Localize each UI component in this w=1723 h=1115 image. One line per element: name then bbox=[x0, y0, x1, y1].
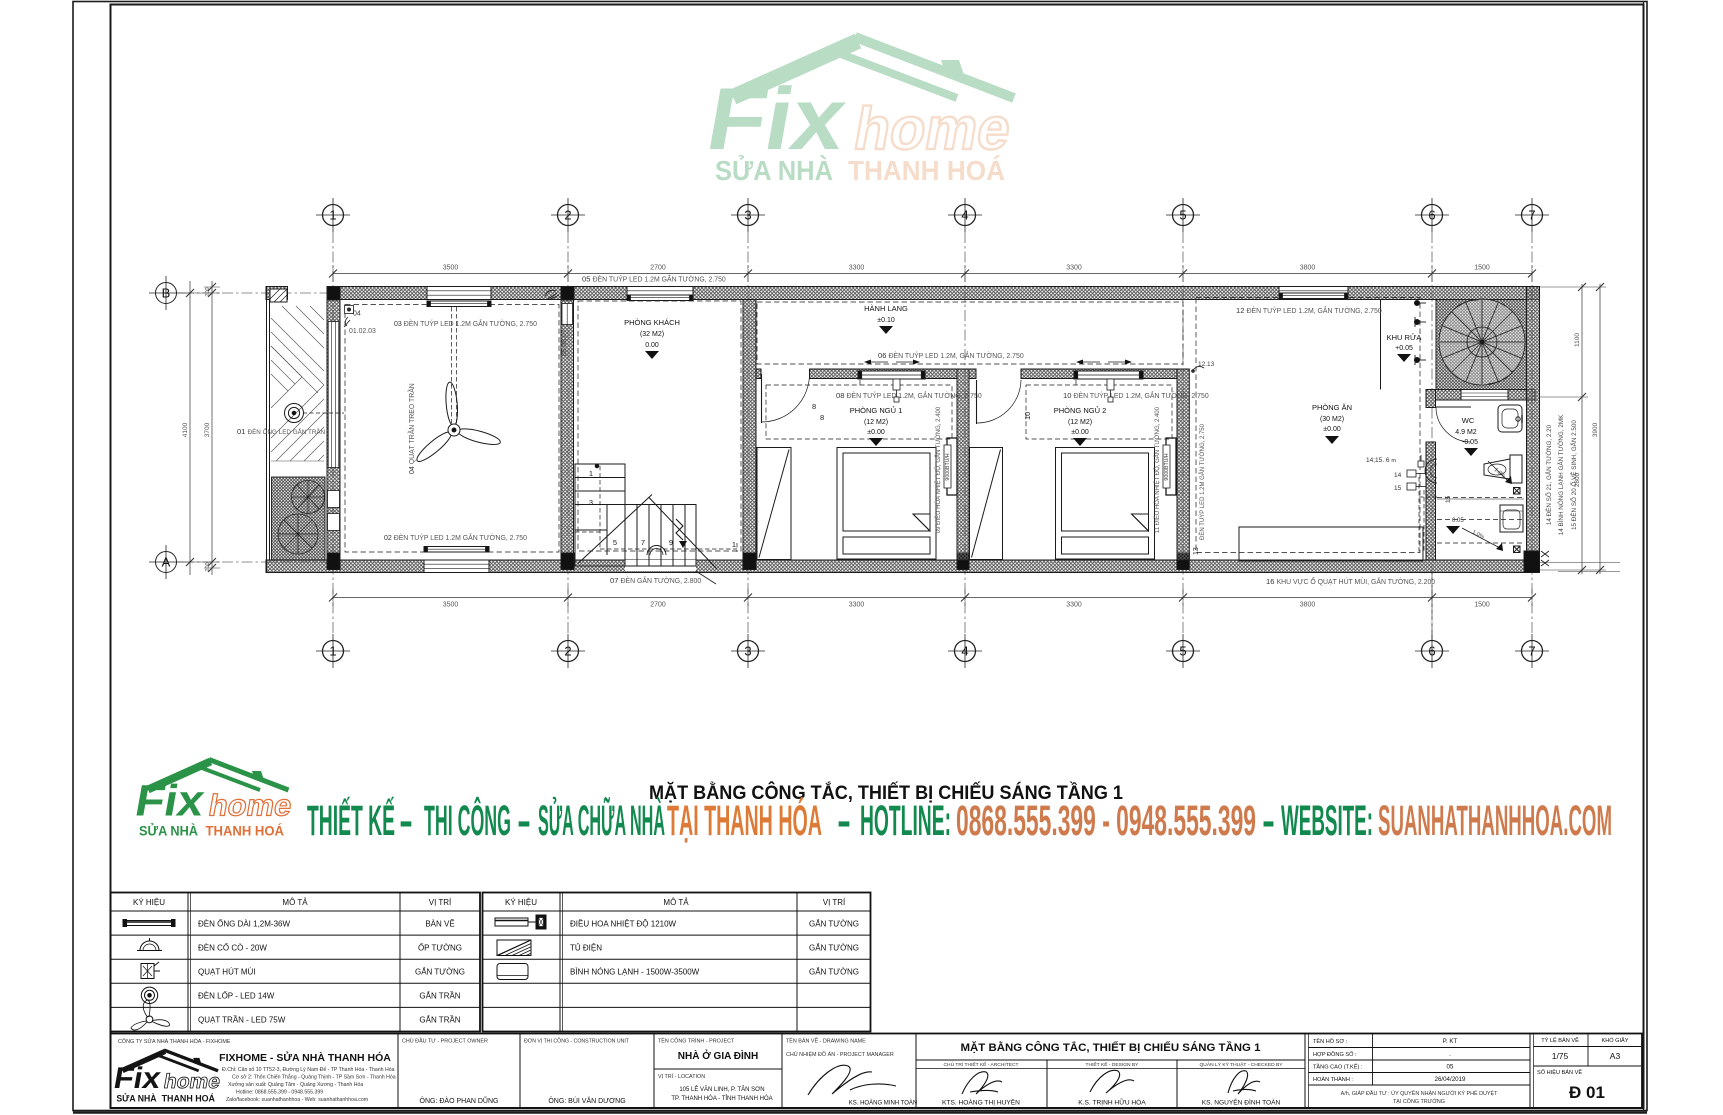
svg-text:08 ĐÈN TUÝP LED 1.2M, GẮN TƯỜN: 08 ĐÈN TUÝP LED 1.2M, GẮN TƯỜNG, 2.750 bbox=[836, 391, 982, 400]
svg-text:03 ĐÈN TUÝP LED 1.2M GẮN TƯỜNG: 03 ĐÈN TUÝP LED 1.2M GẮN TƯỜNG, 2.750 bbox=[394, 319, 537, 328]
svg-text:02 ĐÈN TUÝP LED 1.2M GẮN TƯỜNG: 02 ĐÈN TUÝP LED 1.2M GẮN TƯỜNG, 2.750 bbox=[384, 533, 527, 542]
svg-text:PHÒNG ĂN: PHÒNG ĂN bbox=[1312, 403, 1352, 412]
svg-text:Cơ sở 2: Thôn Chiến Thắng - Qu: Cơ sở 2: Thôn Chiến Thắng - Quảng Thịnh … bbox=[232, 1074, 396, 1081]
svg-text:2700: 2700 bbox=[650, 265, 666, 272]
svg-text:1100: 1100 bbox=[1574, 333, 1581, 347]
svg-text:ĐƠN VỊ THI CÔNG - CONSTRUCTION: ĐƠN VỊ THI CÔNG - CONSTRUCTION UNIT bbox=[524, 1038, 630, 1045]
svg-text:SỐ HIỆU BẢN VẼ: SỐ HIỆU BẢN VẼ bbox=[1537, 1068, 1582, 1076]
svg-text:NHÀ Ở GIA ĐÌNH: NHÀ Ở GIA ĐÌNH bbox=[678, 1049, 758, 1062]
svg-text:04: 04 bbox=[353, 311, 361, 318]
svg-text:THI CÔNG: THI CÔNG bbox=[424, 796, 511, 845]
svg-text:9: 9 bbox=[669, 538, 673, 547]
svg-text:SUANHATHANHHOA.COM: SUANHATHANHHOA.COM bbox=[1378, 798, 1612, 845]
svg-text:14 ĐÈN SỐ 21, GẮN TƯỜNG, 2.20: 14 ĐÈN SỐ 21, GẮN TƯỜNG, 2.20 bbox=[1543, 424, 1553, 525]
svg-text:14: 14 bbox=[1394, 472, 1402, 479]
svg-text:3800: 3800 bbox=[1300, 602, 1316, 609]
svg-text:SỬA NHÀ: SỬA NHÀ bbox=[139, 822, 198, 839]
svg-text:6: 6 bbox=[1428, 208, 1435, 223]
svg-text:ĐÈN ỐNG DÀI 1,2M-36W: ĐÈN ỐNG DÀI 1,2M-36W bbox=[198, 919, 290, 929]
svg-text:9000BTU/H: 9000BTU/H bbox=[945, 453, 951, 480]
svg-text:1: 1 bbox=[329, 644, 336, 659]
svg-text:Zalo/facebook: suanhathanhhoa: Zalo/facebook: suanhathanhhoa - Web: sua… bbox=[226, 1097, 368, 1103]
svg-text:home: home bbox=[162, 1070, 222, 1093]
svg-text:2700: 2700 bbox=[650, 602, 666, 609]
svg-text:3300: 3300 bbox=[1066, 265, 1082, 272]
svg-text:TẠI CÔNG TRƯỜNG: TẠI CÔNG TRƯỜNG bbox=[1393, 1098, 1445, 1105]
svg-text:THIẾT KẾ: THIẾT KẾ bbox=[307, 797, 395, 845]
svg-text:(12 M2): (12 M2) bbox=[1068, 419, 1092, 426]
svg-text:3500: 3500 bbox=[443, 602, 459, 609]
svg-text:05.06.07: 05.06.07 bbox=[561, 329, 568, 356]
svg-text:home: home bbox=[849, 94, 1016, 161]
svg-text:3: 3 bbox=[744, 644, 751, 659]
svg-text:15: 15 bbox=[1445, 495, 1452, 503]
svg-text:-: - bbox=[837, 798, 851, 845]
svg-text:MÔ TẢ: MÔ TẢ bbox=[663, 898, 689, 907]
svg-text:HỢP ĐỒNG SỐ :: HỢP ĐỒNG SỐ : bbox=[1313, 1051, 1357, 1058]
svg-text:home: home bbox=[206, 790, 294, 823]
svg-text:ĐÈN CỔ CÒ - 20W: ĐÈN CỔ CÒ - 20W bbox=[198, 944, 267, 953]
svg-text:8: 8 bbox=[820, 413, 824, 422]
svg-text:Fix: Fix bbox=[111, 1062, 163, 1095]
svg-text:4: 4 bbox=[961, 644, 968, 659]
svg-text:Hotline: 0868.555.399 - 0948.5: Hotline: 0868.555.399 - 0948.555.399 bbox=[236, 1090, 323, 1096]
svg-text:15: 15 bbox=[1394, 485, 1402, 492]
svg-text:ĐÈN TUÝP LED 1.2M GẮN TƯỜNG, 2: ĐÈN TUÝP LED 1.2M GẮN TƯỜNG, 2.750 bbox=[1198, 423, 1206, 540]
svg-text:05 ĐÈN TUÝP LED 1.2M GẮN TƯỜNG: 05 ĐÈN TUÝP LED 1.2M GẮN TƯỜNG, 2.750 bbox=[582, 275, 726, 284]
svg-text:TÊN CÔNG TRÌNH - PROJECT: TÊN CÔNG TRÌNH - PROJECT bbox=[658, 1037, 735, 1045]
svg-text:200: 200 bbox=[205, 287, 211, 296]
svg-text:4: 4 bbox=[961, 208, 968, 223]
svg-text:THANH HOÁ: THANH HOÁ bbox=[162, 1094, 215, 1105]
svg-text:1.0%: 1.0% bbox=[1471, 529, 1485, 540]
svg-text:TP. THANH HÓA - TỈNH THANH HÓA: TP. THANH HÓA - TỈNH THANH HÓA bbox=[671, 1095, 772, 1102]
svg-text:3: 3 bbox=[589, 498, 593, 507]
svg-text:TẠI THANH HÓA: TẠI THANH HÓA bbox=[667, 796, 822, 845]
svg-text:±0.10: ±0.10 bbox=[877, 317, 895, 324]
svg-text:+0.05: +0.05 bbox=[1395, 345, 1413, 352]
svg-text:TỦ ĐIỆN: TỦ ĐIỆN bbox=[570, 944, 602, 953]
svg-text:ÔNG: BÙI VĂN DƯƠNG: ÔNG: BÙI VĂN DƯƠNG bbox=[548, 1096, 625, 1105]
svg-text:1: 1 bbox=[732, 540, 736, 549]
svg-text:1: 1 bbox=[329, 208, 336, 223]
svg-text:10: 10 bbox=[1023, 412, 1032, 420]
svg-text:12.13: 12.13 bbox=[1198, 361, 1215, 368]
svg-text:GẮN TRẦN: GẮN TRẦN bbox=[419, 1015, 460, 1025]
svg-text:(30 M2): (30 M2) bbox=[1320, 416, 1344, 423]
svg-text:Đ.Chỉ: Căn số 10 TT52-3, Đường: Đ.Chỉ: Căn số 10 TT52-3, Đường Lý Nam Đế… bbox=[222, 1066, 395, 1073]
svg-text:3300: 3300 bbox=[849, 602, 865, 609]
svg-text:2: 2 bbox=[564, 644, 571, 659]
svg-text:THANH HOÁ: THANH HOÁ bbox=[206, 823, 285, 839]
svg-text:1500: 1500 bbox=[1474, 265, 1490, 272]
svg-text:0868.555.399 - 0948.555.399: 0868.555.399 - 0948.555.399 bbox=[956, 798, 1256, 845]
svg-text:ÔNG: ĐÀO PHAN DŨNG: ÔNG: ĐÀO PHAN DŨNG bbox=[420, 1096, 499, 1105]
svg-text:GẮN TƯỜNG: GẮN TƯỜNG bbox=[809, 944, 859, 953]
svg-text:VỊ TRÍ: VỊ TRÍ bbox=[429, 898, 452, 907]
svg-text:8: 8 bbox=[812, 402, 816, 411]
svg-text:CHỦ ĐẦU TƯ - PROJECT OWNER: CHỦ ĐẦU TƯ - PROJECT OWNER bbox=[402, 1038, 488, 1045]
svg-text:VỊ TRÍ - LOCATION: VỊ TRÍ - LOCATION bbox=[658, 1073, 705, 1080]
svg-text:TÊN BẢN VẼ - DRAWING NAME: TÊN BẢN VẼ - DRAWING NAME bbox=[786, 1037, 866, 1045]
svg-text:B: B bbox=[162, 286, 171, 301]
svg-text:P. KT: P. KT bbox=[1443, 1038, 1458, 1045]
svg-text:GẮN TƯỜNG: GẮN TƯỜNG bbox=[809, 920, 859, 929]
svg-text:3300: 3300 bbox=[849, 265, 865, 272]
svg-text:11 ĐIỀU HÒA NHIỆT ĐỘ, GẮN TƯỜN: 11 ĐIỀU HÒA NHIỆT ĐỘ, GẮN TƯỜNG, 2.400 bbox=[1153, 406, 1161, 533]
svg-text:GẮN TRẦN: GẮN TRẦN bbox=[419, 991, 460, 1001]
svg-text:2: 2 bbox=[564, 208, 571, 223]
svg-text:6: 6 bbox=[1428, 644, 1435, 659]
svg-text:BÌNH NÓNG LẠNH - 1500W-3500W: BÌNH NÓNG LẠNH - 1500W-3500W bbox=[570, 968, 700, 977]
svg-text:9000BTU/H: 9000BTU/H bbox=[1164, 453, 1170, 480]
svg-text:13: 13 bbox=[1193, 547, 1200, 555]
svg-text:01.02.03: 01.02.03 bbox=[349, 328, 376, 335]
svg-text:SỬA NHÀ: SỬA NHÀ bbox=[715, 154, 833, 186]
svg-text:GẮN TƯỜNG: GẮN TƯỜNG bbox=[809, 968, 859, 977]
svg-text:1/75: 1/75 bbox=[1552, 1051, 1569, 1061]
svg-text:.: . bbox=[1449, 1051, 1451, 1058]
svg-text:TÊN HỒ SƠ :: TÊN HỒ SƠ : bbox=[1313, 1037, 1348, 1045]
svg-text:5: 5 bbox=[1179, 644, 1186, 659]
svg-text:CÔNG TY SỬA NHÀ THANH HÓA - FI: CÔNG TY SỬA NHÀ THANH HÓA - FIXHOME bbox=[118, 1038, 231, 1045]
svg-text:HOÀN THÀNH :: HOÀN THÀNH : bbox=[1313, 1076, 1353, 1083]
svg-text:5: 5 bbox=[1179, 208, 1186, 223]
svg-text:K.S. TRỊNH HỮU HÓA: K.S. TRỊNH HỮU HÓA bbox=[1078, 1098, 1146, 1107]
svg-text:16 KHU VỰC Ổ QUẠT HÚT MÙI, GẮN: 16 KHU VỰC Ổ QUẠT HÚT MÙI, GẮN TƯỜNG, 2.… bbox=[1266, 577, 1435, 586]
svg-text:MẶT BẰNG CÔNG TẮC, THIẾT BỊ CH: MẶT BẰNG CÔNG TẮC, THIẾT BỊ CHIẾU SÁNG T… bbox=[961, 1041, 1261, 1054]
svg-text:THANH HOÁ: THANH HOÁ bbox=[848, 155, 1005, 186]
svg-text:05: 05 bbox=[1447, 1064, 1454, 1071]
svg-text:A: A bbox=[162, 555, 171, 570]
svg-text:±0.00: ±0.00 bbox=[867, 429, 885, 436]
svg-text:FIXHOME - SỬA NHÀ THANH HÓA: FIXHOME - SỬA NHÀ THANH HÓA bbox=[219, 1051, 391, 1064]
svg-text:KTS. HOÀNG THỊ HUYỀN: KTS. HOÀNG THỊ HUYỀN bbox=[942, 1097, 1020, 1107]
svg-text:7: 7 bbox=[1528, 644, 1535, 659]
svg-text:CHỦ TRÌ THIẾT KẾ - ARCHITECT: CHỦ TRÌ THIẾT KẾ - ARCHITECT bbox=[944, 1061, 1019, 1068]
svg-text:QUẠT HÚT MÙI: QUẠT HÚT MÙI bbox=[198, 968, 255, 977]
svg-text:ĐIỀU HOA NHIỆT ĐỘ 1210W: ĐIỀU HOA NHIỆT ĐỘ 1210W bbox=[570, 919, 677, 929]
svg-text:7: 7 bbox=[1528, 208, 1535, 223]
svg-text:KÝ HIỆU: KÝ HIỆU bbox=[505, 898, 537, 907]
svg-text:TỶ LỆ BẢN VẼ: TỶ LỆ BẢN VẼ bbox=[1541, 1036, 1579, 1044]
svg-text:QUẠT TRẦN - LED 75W: QUẠT TRẦN - LED 75W bbox=[198, 1015, 286, 1025]
svg-text:±0.00: ±0.00 bbox=[1071, 429, 1089, 436]
svg-text:-: - bbox=[517, 798, 531, 845]
svg-text:A3: A3 bbox=[1610, 1051, 1621, 1061]
svg-text:(32 M2): (32 M2) bbox=[640, 331, 664, 338]
svg-text:THIẾT KẾ - DESIGN BY: THIẾT KẾ - DESIGN BY bbox=[1086, 1061, 1140, 1068]
svg-text:07 ĐÈN GẮN TƯỜNG, 2.800: 07 ĐÈN GẮN TƯỜNG, 2.800 bbox=[610, 576, 701, 585]
svg-text:5: 5 bbox=[613, 538, 617, 547]
svg-text:-0.05: -0.05 bbox=[1462, 439, 1478, 446]
svg-text:SỬA NHÀ: SỬA NHÀ bbox=[116, 1093, 156, 1105]
svg-text:-: - bbox=[1262, 798, 1275, 845]
svg-text:ĐÈN LỐP - LED 14W: ĐÈN LỐP - LED 14W bbox=[198, 991, 275, 1001]
svg-text:10 ĐÈN TUÝP LED 1.2M, GẮN TƯỜN: 10 ĐÈN TUÝP LED 1.2M, GẮN TƯỜNG, 2.750 bbox=[1063, 391, 1209, 400]
svg-text:HÀNH LANG: HÀNH LANG bbox=[864, 304, 908, 313]
svg-text:1: 1 bbox=[589, 469, 593, 478]
svg-text:Đ 01: Đ 01 bbox=[1569, 1083, 1605, 1102]
svg-text:KHỔ GIẤY: KHỔ GIẤY bbox=[1601, 1037, 1628, 1044]
svg-text:SỬA CHỮA NHÀ: SỬA CHỮA NHÀ bbox=[538, 796, 665, 845]
svg-text:QUẢN LÝ KỸ THUẬT - CHECKED BY: QUẢN LÝ KỸ THUẬT - CHECKED BY bbox=[1200, 1061, 1284, 1068]
svg-text:PHÒNG KHÁCH: PHÒNG KHÁCH bbox=[624, 318, 680, 327]
svg-text:CHỦ NHIỆM ĐỒ ÁN - PROJECT MANA: CHỦ NHIỆM ĐỒ ÁN - PROJECT MANAGER bbox=[786, 1050, 894, 1058]
svg-text:3700: 3700 bbox=[204, 422, 211, 437]
svg-text:Fix: Fix bbox=[700, 70, 853, 168]
svg-text:200: 200 bbox=[205, 562, 211, 571]
svg-text:KÝ HIỆU: KÝ HIỆU bbox=[133, 898, 165, 907]
svg-text:1500: 1500 bbox=[1474, 602, 1490, 609]
svg-text:ỐP TƯỜNG: ỐP TƯỜNG bbox=[418, 943, 462, 953]
svg-text:06 ĐÈN TUÝP LED 1.2M, GẮN TƯỜN: 06 ĐÈN TUÝP LED 1.2M, GẮN TƯỜNG, 2.750 bbox=[878, 351, 1024, 360]
svg-text:7: 7 bbox=[641, 538, 645, 547]
svg-text:WEBSITE:: WEBSITE: bbox=[1281, 798, 1373, 845]
svg-text:Xưởng sản xuất: Quảng Tâm - Qu: Xưởng sản xuất: Quảng Tâm - Quảng Xương … bbox=[228, 1081, 363, 1088]
svg-text:14;15. 6 m: 14;15. 6 m bbox=[1366, 457, 1396, 464]
svg-text:Fix: Fix bbox=[132, 777, 209, 826]
svg-text:PHÒNG NGỦ 1: PHÒNG NGỦ 1 bbox=[850, 406, 903, 415]
svg-text:3: 3 bbox=[744, 208, 751, 223]
svg-text:3300: 3300 bbox=[1066, 602, 1082, 609]
svg-text:A/h, GIÁP ĐẦU TƯ : ỦY QUYỀN NH: A/h, GIÁP ĐẦU TƯ : ỦY QUYỀN NHẬN NGƯỜI K… bbox=[1341, 1089, 1498, 1097]
svg-text:15 ĐÈN SỐ 20 Ổ VỆ SINH, GẮN 2.: 15 ĐÈN SỐ 20 Ổ VỆ SINH, GẮN 2.500 bbox=[1568, 420, 1578, 530]
svg-text:09 ĐIỀU HÒA NHIỆT ĐỘ, GẮN TƯỜN: 09 ĐIỀU HÒA NHIỆT ĐỘ, GẮN TƯỜNG, 2.400 bbox=[934, 406, 942, 533]
svg-text:PHÒNG NGỦ 2: PHÒNG NGỦ 2 bbox=[1054, 406, 1107, 415]
svg-text:105 LÊ VĂN LINH, P. TÂN SƠN: 105 LÊ VĂN LINH, P. TÂN SƠN bbox=[679, 1085, 764, 1093]
svg-text:HOTLINE:: HOTLINE: bbox=[860, 798, 951, 845]
svg-text:3900: 3900 bbox=[1592, 422, 1599, 437]
svg-text:0.05: 0.05 bbox=[1452, 518, 1464, 524]
svg-text:MÔ TẢ: MÔ TẢ bbox=[282, 898, 308, 907]
svg-text:04 QUẠT TRẦN TREO TRẦN: 04 QUẠT TRẦN TREO TRẦN bbox=[406, 383, 416, 474]
svg-text:VỊ TRÍ: VỊ TRÍ bbox=[823, 898, 846, 907]
svg-text:±0.00: ±0.00 bbox=[1323, 426, 1341, 433]
svg-text:3500: 3500 bbox=[443, 265, 459, 272]
svg-text:26/04/2019: 26/04/2019 bbox=[1435, 1076, 1467, 1083]
svg-text:12 ĐÈN TUÝP LED 1.2M, GẮN TƯỜN: 12 ĐÈN TUÝP LED 1.2M, GẮN TƯỜNG, 2.750 bbox=[1236, 306, 1382, 315]
svg-text:4.9 M2: 4.9 M2 bbox=[1455, 429, 1477, 436]
svg-text:-: - bbox=[399, 798, 413, 845]
svg-text:(12 M2): (12 M2) bbox=[864, 419, 888, 426]
svg-text:0.00: 0.00 bbox=[645, 342, 659, 349]
svg-text:3800: 3800 bbox=[1300, 265, 1316, 272]
svg-text:BÀN VẼ: BÀN VẼ bbox=[425, 920, 454, 929]
svg-text:KS. HOÀNG MINH TOÀN: KS. HOÀNG MINH TOÀN bbox=[849, 1100, 917, 1107]
svg-text:GẮN TƯỜNG: GẮN TƯỜNG bbox=[415, 968, 465, 977]
svg-text:KHU RỬA: KHU RỬA bbox=[1387, 333, 1422, 342]
svg-text:14 BÌNH NÓNG LẠNH GẮN TƯỜNG, 2: 14 BÌNH NÓNG LẠNH GẮN TƯỜNG, 2MK bbox=[1556, 414, 1565, 535]
svg-text:TẦNG CAO (T.KẾ) :: TẦNG CAO (T.KẾ) : bbox=[1313, 1064, 1363, 1071]
svg-text:4100: 4100 bbox=[182, 422, 189, 437]
svg-text:KS. NGUYỄN ĐÌNH TOÀN: KS. NGUYỄN ĐÌNH TOÀN bbox=[1202, 1098, 1281, 1107]
svg-text:WC: WC bbox=[1462, 416, 1475, 425]
